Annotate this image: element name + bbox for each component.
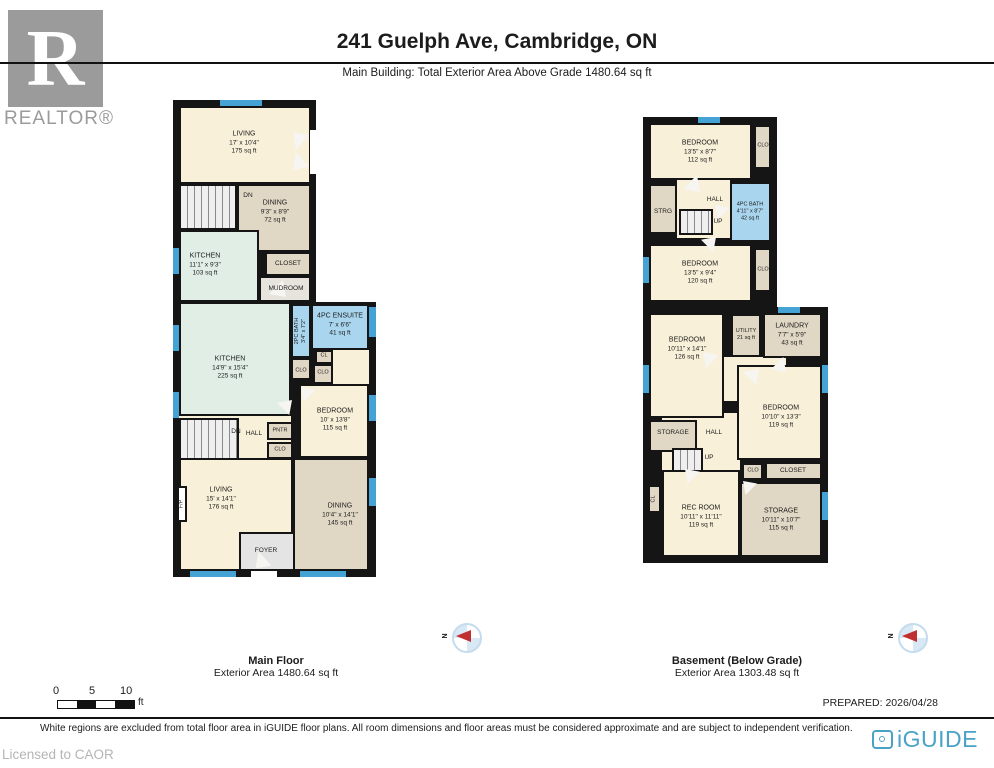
window — [173, 392, 179, 418]
stairs-label: UP — [704, 454, 713, 462]
stairs-up-1 — [679, 209, 713, 235]
scale-segment — [77, 701, 96, 708]
window — [822, 492, 828, 520]
room-label: CLOSET — [780, 467, 806, 475]
compass-north-label: N — [888, 633, 895, 638]
hall-label: HALL — [246, 430, 262, 438]
window — [369, 395, 376, 421]
room-label: PNTR — [273, 428, 288, 435]
room-label: 4PC BATH 4'11" x 8'7" 42 sq ft — [737, 202, 764, 223]
stairs-down-lower — [179, 418, 239, 462]
window — [190, 571, 236, 577]
window — [173, 325, 179, 351]
window — [300, 571, 346, 577]
door-opening — [251, 571, 277, 577]
realtor-logo-word: REALTOR® — [4, 108, 114, 130]
window — [643, 365, 649, 393]
room-label: REC ROOM 10'11" x 11'11" 119 sq ft — [680, 505, 721, 530]
room-label: CLO — [757, 143, 768, 150]
room-label: BEDROOM 10'10" x 13'3" 119 sq ft — [761, 405, 800, 430]
room-label: LIVING 17' x 10'4" 175 sq ft — [229, 131, 259, 156]
room-label: LAUNDRY 7'7" x 5'9" 43 sq ft — [775, 323, 808, 348]
footer-divider — [0, 717, 994, 719]
scale-tick-5: 5 — [89, 685, 95, 697]
scale-segment — [58, 701, 77, 708]
window — [778, 307, 800, 313]
compass-basement: N — [898, 623, 924, 649]
room-label: UTILITY 21 sq ft — [736, 328, 756, 342]
room-label: KITCHEN 14'9" x 15'4" 225 sq ft — [212, 356, 248, 381]
room-label: CLO — [295, 368, 306, 375]
room-label: 4PC ENSUITE 7' x 6'6" 41 sq ft — [317, 313, 363, 338]
room-label: CLO — [747, 468, 758, 475]
scale-tick-10: 10 — [120, 685, 132, 697]
room-label: LIVING 15' x 14'1" 176 sq ft — [206, 487, 236, 512]
room-label: FOYER — [255, 547, 277, 555]
iguide-logo: iGUIDE — [872, 726, 978, 753]
room-label: CLO — [274, 447, 285, 454]
room-label: 2PC BATH 3'4" x 7'2" — [294, 318, 308, 345]
stairs-label: DN — [243, 192, 252, 200]
room-label: CL — [651, 495, 658, 502]
page-subtitle: Main Building: Total Exterior Area Above… — [0, 67, 994, 79]
room-label: DINING 10'4" x 14'1" 145 sq ft — [322, 503, 358, 528]
room-label: DINING 9'3" x 8'9" 72 sq ft — [261, 200, 289, 225]
scale-segment — [115, 701, 134, 708]
room-label: CLO — [317, 370, 328, 377]
compass-north-arrow — [456, 630, 471, 642]
scale-segment — [96, 701, 115, 708]
room-label: STORAGE 10'11" x 10'7" 115 sq ft — [762, 508, 801, 533]
stairs-label: DN — [231, 428, 240, 436]
iguide-camera-icon — [872, 730, 893, 749]
stairs-down — [179, 184, 237, 230]
window — [369, 307, 376, 337]
realtor-logo: R — [8, 10, 103, 107]
window — [220, 100, 262, 106]
main-floor-plan: LIVING 17' x 10'4" 175 sq ft DN DINING 9… — [173, 100, 379, 577]
room-label: CLO — [757, 267, 768, 274]
compass-main: N — [452, 623, 478, 649]
main-floor-caption: Main Floor Exterior Area 1480.64 sq ft — [214, 655, 338, 679]
room-label: STRG — [654, 208, 672, 216]
window — [643, 257, 649, 283]
room-label: CLOSET — [275, 260, 301, 268]
compass-north-label: N — [442, 633, 449, 638]
room-label: BEDROOM 10' x 13'8" 115 sq ft — [317, 408, 353, 433]
hall-label: HALL — [707, 196, 723, 204]
disclaimer-text: White regions are excluded from total fl… — [40, 723, 853, 734]
scale-tick-0: 0 — [53, 685, 59, 697]
iguide-wordmark: iGUIDE — [897, 726, 978, 753]
window — [369, 478, 376, 506]
room-label: BEDROOM 13'5" x 9'4" 120 sq ft — [682, 261, 718, 286]
room-label: KITCHEN 11'1" x 9'3" 103 sq ft — [189, 253, 221, 278]
prepared-date: PREPARED: 2026/04/28 — [823, 697, 938, 709]
room-label: MUDROOM — [268, 285, 303, 293]
room-label: STORAGE — [657, 429, 689, 437]
window — [822, 365, 828, 393]
page-title: 241 Guelph Ave, Cambridge, ON — [0, 30, 994, 54]
window — [173, 248, 179, 274]
hall-label: HALL — [706, 429, 722, 437]
scale-bar — [57, 700, 135, 709]
basement-plan: BEDROOM 13'5" x 8'7" 112 sq ft CLO STRG … — [643, 117, 828, 563]
door-opening — [310, 130, 319, 174]
fireplace-label: F/P — [179, 500, 186, 509]
scale-unit: ft — [138, 697, 144, 708]
compass-north-arrow — [902, 630, 917, 642]
corridor-area — [333, 350, 369, 384]
room-label: CL — [320, 353, 327, 360]
window — [698, 117, 720, 123]
title-divider — [0, 62, 994, 64]
stairs-label: UP — [713, 218, 722, 226]
room-bedroom-3 — [649, 313, 724, 418]
license-text: Licensed to CAOR — [2, 747, 114, 762]
basement-caption: Basement (Below Grade) Exterior Area 130… — [672, 655, 802, 679]
room-label: BEDROOM 13'5" x 8'7" 112 sq ft — [682, 140, 718, 165]
room-label: BEDROOM 10'11" x 14'1" 126 sq ft — [668, 337, 707, 362]
